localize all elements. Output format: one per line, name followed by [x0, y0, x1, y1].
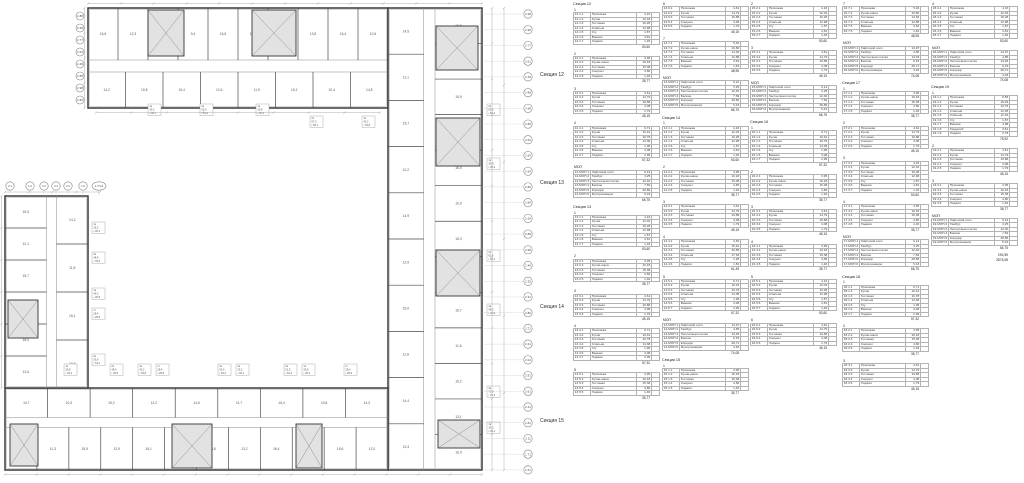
area-table: 12.2.1Прихожая3,9512.2.2Кухня-ниша10,181…: [573, 56, 660, 80]
area-table: 12.1.1Прихожая4,1612.1.2Кухня12,0412.1.3…: [573, 12, 660, 45]
table-row: 15-МОП.6Мусорокамера5,43: [751, 108, 837, 113]
table-cell: Лоджия: [768, 306, 814, 311]
table-cell: 13-МОП.4: [663, 94, 680, 99]
table-cell: 16-МОП.1: [843, 46, 860, 51]
table-cell: 14-МОП.6: [663, 346, 680, 351]
table-cell: 16.4.5: [751, 262, 768, 267]
table-row: 18.3.5Лоджия1,79: [843, 382, 929, 387]
apartment-total-area: 48,95: [842, 34, 928, 38]
table-cell: 17-МОП.3: [843, 249, 860, 254]
table-cell: Мусорокамера: [591, 193, 637, 198]
table-row: 12.3.5Лоджия1,79: [574, 109, 660, 114]
table-cell: 17.1.5: [843, 109, 860, 114]
table-cell: 13.6.5: [663, 25, 680, 30]
table-row: 18.1.7Лоджия2,99: [843, 312, 929, 317]
table-cell: [741, 306, 749, 311]
area-table: 17.1.1Прихожая3,9517.1.2Кухня-ниша10,181…: [842, 91, 929, 115]
table-cell: 18.4.7: [932, 34, 949, 39]
table-cell: Лоджия: [591, 242, 637, 247]
area-table: 14-МОП.1Лифтовой холл14,9714-МОП.2Тамбур…: [662, 323, 749, 351]
apartment-total-area: 35,77: [573, 396, 659, 400]
table-row: 17.1.5Лоджия1,46: [843, 109, 929, 114]
table-cell: 15-МОП.4: [751, 99, 768, 104]
area-table: 13.6.1Прихожая4,6113.6.2Кухня14,7913.6.3…: [662, 6, 749, 30]
apartment-total-area: 66,75: [662, 108, 748, 112]
table-cell: Лоджия: [591, 391, 637, 396]
table-cell: Лоджия: [680, 306, 726, 311]
table-cell: [829, 34, 837, 39]
apartment-total-area: 53,60: [842, 193, 928, 197]
table-cell: 12.1.7: [574, 40, 591, 45]
table-cell: 13-МОП.1: [663, 81, 680, 86]
table-cell: Лоджия: [860, 109, 906, 114]
table-cell: [652, 109, 660, 114]
table-row: 13.4.7Лоджия2,99: [574, 356, 660, 361]
area-schedule: Секция 12112.1.1Прихожая4,1612.1.2Кухня1…: [0, 0, 1024, 478]
table-cell: Лоджия: [768, 158, 814, 163]
table-cell: 1,81: [906, 29, 921, 34]
table-cell: Лоджия: [591, 40, 637, 45]
table-row: 19.3.5Лоджия1,46: [932, 202, 1018, 207]
table-row: 12.1.7Лоджия1,46: [574, 40, 660, 45]
table-cell: [829, 193, 837, 198]
table-cell: Лоджия: [680, 153, 726, 158]
table-cell: 1,46: [637, 40, 652, 45]
table-cell: [652, 40, 660, 45]
area-table: 14.4.1Прихожая4,5214.4.2Кухня15,4214.4.3…: [662, 239, 749, 267]
table-cell: 1,79: [906, 144, 921, 149]
area-table: 17.2.1Прихожая4,6117.2.2Кухня14,7917.2.3…: [842, 126, 929, 150]
table-row: 17-МОП.3Лестничная клетка12,40: [843, 249, 929, 254]
area-table: 18.2.1Прихожая3,9518.2.2Кухня-ниша10,181…: [842, 328, 929, 352]
table-column: 215.2.1Прихожая4,1615.2.2Кухня12,0415.2.…: [750, 2, 836, 353]
apartment-total-area: 35,77: [573, 282, 659, 286]
table-cell: 1,46: [906, 109, 921, 114]
table-cell: [1010, 34, 1018, 39]
apartment-total-area: 45,15: [573, 317, 659, 321]
area-table: 14.1.1Прихожая4,1614.1.2Кухня12,0414.1.3…: [662, 126, 749, 159]
apartment-total-area: 53,60: [931, 39, 1017, 43]
table-cell: 1,46: [995, 34, 1010, 39]
apartment-total-area: 48,95: [662, 69, 748, 73]
table-row: 13.5.5Лоджия1,46: [574, 391, 660, 396]
table-cell: Лоджия: [768, 341, 814, 346]
table-cell: [829, 108, 837, 113]
table-cell: 13-МОП.2: [663, 85, 680, 90]
table-cell: 13.7.6: [663, 64, 680, 69]
table-row: 14.5.7Лоджия2,99: [663, 306, 749, 311]
table-row: 14.2.5Лоджия1,46: [663, 188, 749, 193]
table-row: 14.4.6Лоджия1,52: [663, 262, 749, 267]
table-column: 418.4.1Прихожая4,1618.4.2Кухня12,0418.4.…: [931, 2, 1017, 262]
table-cell: 17-МОП.4: [843, 253, 860, 258]
table-cell: 1,46: [906, 347, 921, 352]
table-cell: 13.1.7: [574, 242, 591, 247]
table-row: 19-МОП.6Мусорокамера5,43: [932, 241, 1018, 246]
table-cell: 13-МОП.5: [663, 99, 680, 104]
table-cell: 1,79: [995, 167, 1010, 172]
table-cell: [652, 74, 660, 79]
table-cell: [741, 153, 749, 158]
table-row: 18.2.5Лоджия1,46: [843, 347, 929, 352]
table-cell: 16.3.5: [751, 227, 768, 232]
table-cell: Лоджия: [680, 64, 726, 69]
table-cell: [921, 382, 929, 387]
table-cell: [1010, 202, 1018, 207]
table-cell: Лоджия: [768, 262, 814, 267]
table-cell: 19-МОП.6: [932, 241, 949, 246]
area-table: 17.3.1Прихожая4,1617.3.2Кухня12,0417.3.3…: [842, 161, 929, 194]
table-cell: 15-МОП.3: [751, 94, 768, 99]
table-cell: [829, 69, 837, 74]
table-cell: 12.2.5: [574, 74, 591, 79]
table-cell: 19.1.9: [932, 132, 949, 137]
table-cell: [921, 223, 929, 228]
table-cell: 15-МОП.1: [751, 85, 768, 90]
table-row: 19-МОП.3Лестничная клетка12,40: [932, 227, 1018, 232]
table-cell: 18-МОП.4: [932, 64, 949, 69]
table-cell: 1,46: [637, 74, 652, 79]
table-row: 16-МОП.6Мусорокамера4,94: [843, 69, 929, 74]
table-cell: Лоджия: [680, 188, 726, 193]
area-table: 12.3.1Прихожая4,6112.3.2Кухня14,7912.3.3…: [573, 91, 660, 115]
table-cell: 5,43: [995, 241, 1010, 246]
table-cell: 15-МОП.2: [751, 90, 768, 95]
table-row: 14.1.7Лоджия1,46: [663, 153, 749, 158]
table-row: 15-МОП.3Лестничная клетка12,40: [751, 94, 837, 99]
apartment-total-area: 45,15: [662, 228, 748, 232]
table-cell: 1,79: [814, 341, 829, 346]
table-cell: 17.4.5: [843, 223, 860, 228]
apartment-total-area: 53,60: [662, 158, 748, 162]
table-cell: 1,79: [906, 382, 921, 387]
table-cell: 15.3.5: [751, 69, 768, 74]
table-cell: Лоджия: [591, 277, 637, 282]
table-cell: 12.3.5: [574, 109, 591, 114]
table-cell: 1,79: [637, 109, 652, 114]
area-table: 13.2.1Прихожая3,9513.2.2Кухня-ниша10,181…: [573, 259, 660, 283]
table-cell: Лоджия: [768, 193, 814, 198]
table-cell: 18.1.7: [843, 312, 860, 317]
area-table: 19.3.1Прихожая3,9519.3.2Кухня-ниша10,181…: [931, 183, 1018, 207]
apartment-total-area: 61,49: [662, 267, 748, 271]
table-cell: 15.1.5: [663, 386, 680, 391]
table-cell: 14-МОП.4: [663, 337, 680, 342]
apartment-total-area: 35,77: [750, 267, 836, 271]
table-cell: 1,46: [814, 193, 829, 198]
grand-total: 2875,08: [931, 258, 1017, 262]
table-cell: 1,52: [726, 262, 741, 267]
table-cell: 1,46: [906, 188, 921, 193]
table-row: 16-МОП.3Лестничная клетка13,45: [843, 55, 929, 60]
area-table: 16.3.1Прихожая4,6116.3.2Кухня14,7916.3.3…: [750, 209, 837, 233]
table-cell: 1,46: [906, 223, 921, 228]
table-row: 13.7.6Лоджия1,81: [663, 64, 749, 69]
area-table: 16.6.1Прихожая4,6116.6.2Кухня14,7916.6.3…: [750, 323, 837, 347]
table-cell: 1,46: [726, 386, 741, 391]
table-row: 17.2.5Лоджия1,79: [843, 144, 929, 149]
table-cell: Мусорокамера: [768, 108, 814, 113]
table-cell: 19-МОП.3: [932, 227, 949, 232]
area-table: 16.7.1Прихожая5,4616.7.2Кухня-ниша10,801…: [842, 6, 929, 34]
table-row: 17.3.7Лоджия1,46: [843, 188, 929, 193]
table-cell: 1,46: [726, 188, 741, 193]
table-cell: 12-МОП.2: [574, 175, 591, 180]
table-cell: Лоджия: [768, 227, 814, 232]
table-row: 17-МОП.6Мусорокамера5,43: [843, 262, 929, 267]
table-column: 716.7.1Прихожая5,4616.7.2Кухня-ниша10,80…: [842, 2, 928, 394]
table-cell: [1010, 241, 1018, 246]
table-cell: 16.6.5: [751, 341, 768, 346]
table-cell: 2,99: [906, 312, 921, 317]
table-cell: [921, 347, 929, 352]
table-cell: 19-МОП.5: [932, 236, 949, 241]
area-table: 13.3.1Прихожая4,6113.3.2Кухня14,7913.3.3…: [573, 294, 660, 318]
table-cell: Лоджия: [591, 74, 637, 79]
table-cell: [741, 64, 749, 69]
table-cell: 1,79: [637, 312, 652, 317]
area-table: 16-МОП.1Лифтовой холл14,9716-МОП.2Тамбур…: [842, 46, 929, 74]
table-column: 613.6.1Прихожая4,6113.6.2Кухня14,7913.6.…: [662, 2, 748, 399]
apartment-total-area: 35,77: [842, 114, 928, 118]
table-cell: 18-МОП.5: [932, 69, 949, 74]
table-row: 13.3.5Лоджия1,79: [574, 312, 660, 317]
table-cell: 18.2.5: [843, 347, 860, 352]
table-cell: [921, 188, 929, 193]
table-cell: [1010, 167, 1018, 172]
table-cell: 17-МОП.1: [843, 240, 860, 245]
table-cell: [1010, 73, 1018, 78]
table-cell: 13.4.7: [574, 356, 591, 361]
table-cell: Мусорокамера: [680, 346, 726, 351]
table-cell: Лоджия: [591, 356, 637, 361]
table-row: 13.2.5Лоджия1,46: [574, 277, 660, 282]
table-cell: 5,43: [906, 262, 921, 267]
table-cell: 1,46: [814, 262, 829, 267]
table-cell: Мусорокамера: [860, 262, 906, 267]
table-cell: 14-МОП.1: [663, 323, 680, 328]
table-row: 16.4.5Лоджия1,46: [751, 262, 837, 267]
table-cell: 17.3.7: [843, 188, 860, 193]
apartment-total-area: 53,60: [573, 45, 659, 49]
table-cell: [829, 262, 837, 267]
area-table: 15.1.1Прихожая3,9515.1.2Кухня-ниша10,181…: [662, 368, 749, 392]
apartment-total-area: 35,77: [662, 193, 748, 197]
table-row: 16.2.5Лоджия1,46: [751, 193, 837, 198]
table-cell: Лоджия: [680, 386, 726, 391]
table-cell: 19.3.5: [932, 202, 949, 207]
table-cell: 14-МОП.3: [663, 332, 680, 337]
table-cell: [741, 103, 749, 108]
table-cell: Лоджия: [860, 312, 906, 317]
table-row: 12-МОП.3Лестничная клетка12,40: [574, 179, 660, 184]
area-table: 18.3.1Прихожая4,6118.3.2Кухня14,7918.3.3…: [842, 363, 929, 387]
table-cell: 12-МОП.1: [574, 170, 591, 175]
table-cell: [652, 242, 660, 247]
table-row: 13-МОП.6Мусорокамера5,43: [663, 103, 749, 108]
table-cell: 17-МОП.6: [843, 262, 860, 267]
table-cell: 14-МОП.2: [663, 328, 680, 333]
table-row: 16.3.5Лоджия1,79: [751, 227, 837, 232]
table-cell: 16-МОП.4: [843, 60, 860, 65]
table-cell: 13.2.5: [574, 277, 591, 282]
table-cell: 1,81: [726, 64, 741, 69]
table-cell: 16-МОП.2: [843, 51, 860, 56]
table-cell: 19-МОП.1: [932, 218, 949, 223]
table-row: 13.1.7Лоджия1,46: [574, 242, 660, 247]
table-cell: [921, 262, 929, 267]
table-row: 13-МОП.3Лестничная клетка12,40: [663, 90, 749, 95]
table-cell: [829, 227, 837, 232]
table-cell: Мусорокамера: [949, 73, 995, 78]
apartment-total-area: 45,15: [842, 387, 928, 391]
table-cell: 5,43: [637, 193, 652, 198]
table-cell: 1,46: [726, 153, 741, 158]
table-cell: Лоджия: [680, 25, 726, 30]
area-table: 18.1.1Прихожая6,7118.1.2Кухня10,4218.1.3…: [842, 285, 929, 318]
table-cell: 19.2.5: [932, 167, 949, 172]
table-row: 15.2.7Лоджия1,46: [751, 34, 837, 39]
apartment-total-area: 35,77: [842, 352, 928, 356]
table-cell: Мусорокамера: [680, 103, 726, 108]
table-cell: [652, 153, 660, 158]
apartment-total-area: 66,75: [750, 113, 836, 117]
area-table: 19-МОП.1Лифтовой холл9,1219-МОП.2Тамбур3…: [931, 218, 1018, 246]
table-cell: 16.5.7: [751, 306, 768, 311]
table-cell: Лоджия: [860, 144, 906, 149]
table-cell: 16-МОП.3: [843, 55, 860, 60]
table-cell: 14.1.7: [663, 153, 680, 158]
table-cell: Лоджия: [591, 312, 637, 317]
table-cell: [921, 144, 929, 149]
apartment-total-area: 57,32: [842, 317, 928, 321]
apartment-total-area: 35,77: [750, 198, 836, 202]
area-table: 15-МОП.1Лифтовой холл9,1215-МОП.2Тамбур3…: [750, 85, 837, 113]
apartment-total-area: 35,77: [662, 391, 748, 395]
table-cell: [652, 277, 660, 282]
table-cell: 5,43: [814, 108, 829, 113]
table-cell: 17.2.5: [843, 144, 860, 149]
table-cell: 15-МОП.6: [751, 108, 768, 113]
table-cell: 16.7.6: [843, 29, 860, 34]
table-cell: 1,46: [637, 277, 652, 282]
table-cell: [741, 346, 749, 351]
table-cell: 2,99: [726, 306, 741, 311]
table-row: 19.2.5Лоджия1,79: [932, 167, 1018, 172]
table-cell: Лоджия: [949, 132, 995, 137]
drawing-page: { "plan": { "section_labels": [ {"label"…: [0, 0, 1024, 478]
apartment-total-area: 57,32: [573, 158, 659, 162]
table-cell: Лоджия: [768, 69, 814, 74]
table-cell: 1,46: [637, 391, 652, 396]
table-row: 14.3.5Лоджия1,79: [663, 223, 749, 228]
apartment-total-area: 35,77: [842, 228, 928, 232]
table-row: 12.4.7Лоджия2,99: [574, 153, 660, 158]
apartment-total-area: 45,15: [662, 30, 748, 34]
table-cell: 12-МОП.3: [574, 179, 591, 184]
table-cell: 19-МОП.2: [932, 223, 949, 228]
table-cell: 18.3.5: [843, 382, 860, 387]
apartment-total-area: 66,75: [573, 198, 659, 202]
table-cell: Лоджия: [949, 167, 995, 172]
apartment-total-area: 66,75: [842, 267, 928, 271]
table-cell: [741, 25, 749, 30]
table-cell: [921, 69, 929, 74]
table-row: 14-МОП.6Мусорокамера4,94: [663, 346, 749, 351]
area-table: 13.7.1Прихожая5,4613.7.2Кухня-ниша10,801…: [662, 41, 749, 69]
table-row: 14-МОП.3Лестничная клетка13,45: [663, 332, 749, 337]
table-cell: [741, 262, 749, 267]
apartment-total-area: 66,75: [931, 246, 1017, 250]
table-cell: [829, 341, 837, 346]
table-row: 18-МОП.6Мусорокамера4,94: [932, 73, 1018, 78]
table-cell: Лоджия: [680, 223, 726, 228]
table-cell: 13-МОП.6: [663, 103, 680, 108]
area-table: 16.4.1Прихожая3,9516.4.2Кухня-ниша10,181…: [750, 244, 837, 268]
apartment-total-area: 45,15: [931, 172, 1017, 176]
area-table: 14.5.1Прихожая6,7114.5.2Кухня10,4214.5.3…: [662, 279, 749, 312]
table-cell: Лоджия: [860, 382, 906, 387]
table-row: 18-МОП.3Лестничная клетка13,45: [932, 60, 1018, 65]
table-cell: 2,99: [637, 153, 652, 158]
table-cell: [652, 312, 660, 317]
table-cell: 18-МОП.1: [932, 51, 949, 56]
table-cell: Лоджия: [680, 262, 726, 267]
table-cell: [921, 109, 929, 114]
table-cell: 12.4.7: [574, 153, 591, 158]
table-row: 12-МОП.6Мусорокамера5,43: [574, 193, 660, 198]
apartment-total-area: 57,32: [573, 361, 659, 365]
table-cell: 18-МОП.6: [932, 73, 949, 78]
table-cell: 4,94: [726, 346, 741, 351]
apartment-total-area: 35,77: [573, 79, 659, 83]
table-cell: 1,46: [814, 306, 829, 311]
apartment-total-area: 45,15: [750, 74, 836, 78]
area-table: 12-МОП.1Лифтовой холл9,1212-МОП.2Тамбур3…: [573, 170, 660, 198]
table-cell: 12-МОП.5: [574, 188, 591, 193]
table-row: 13.6.5Лоджия1,79: [663, 25, 749, 30]
table-row: 15.3.5Лоджия1,79: [751, 69, 837, 74]
table-cell: 1,79: [726, 25, 741, 30]
table-cell: 14.2.5: [663, 188, 680, 193]
table-cell: 1,79: [726, 223, 741, 228]
table-row: 19.1.9Лоджия2,78: [932, 132, 1018, 137]
table-cell: Лоджия: [591, 109, 637, 114]
table-cell: 16.1.7: [751, 158, 768, 163]
table-cell: 15-МОП.5: [751, 103, 768, 108]
apartment-total-area: 53,60: [573, 247, 659, 251]
apartment-total-area: 45,15: [842, 149, 928, 153]
table-cell: Лоджия: [860, 223, 906, 228]
table-cell: 14-МОП.5: [663, 341, 680, 346]
table-cell: 18-МОП.2: [932, 55, 949, 60]
table-cell: [741, 188, 749, 193]
table-row: 18.4.7Лоджия1,46: [932, 34, 1018, 39]
table-cell: Лоджия: [860, 188, 906, 193]
apartment-total-area: 74,08: [662, 351, 748, 355]
table-row: 15.1.5Лоджия1,46: [663, 386, 749, 391]
table-cell: 13-МОП.3: [663, 90, 680, 95]
table-cell: [1010, 132, 1018, 137]
apartment-total-area: 57,32: [750, 163, 836, 167]
apartment-total-area: 45,15: [573, 114, 659, 118]
table-cell: 1,46: [814, 34, 829, 39]
table-cell: 17-МОП.2: [843, 244, 860, 249]
table-cell: [741, 223, 749, 228]
table-cell: Лоджия: [591, 153, 637, 158]
table-cell: 16-МОП.6: [843, 69, 860, 74]
area-table: 13.5.1Прихожая3,9513.5.2Кухня-ниша10,181…: [573, 372, 660, 396]
